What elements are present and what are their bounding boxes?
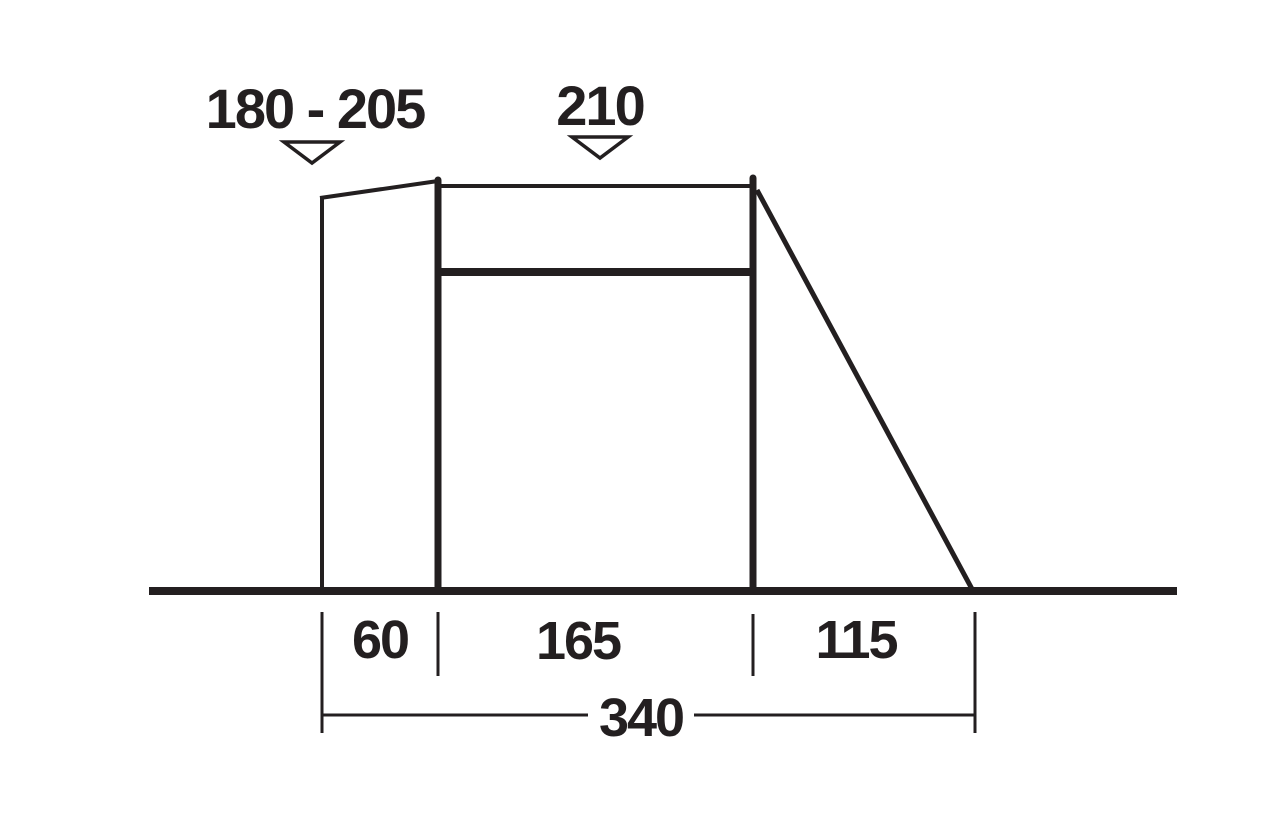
- left-roof-slope-line: [320, 181, 438, 198]
- tent-dimension-diagram: 180 - 205 210 60 165 115 340: [0, 0, 1280, 824]
- width-label-rear: 115: [815, 610, 897, 670]
- total-width-label: 340: [599, 688, 683, 748]
- tent-profile-drawing: [149, 178, 1177, 591]
- width-label-front: 60: [352, 610, 408, 670]
- diagram-canvas: 180 - 205 210 60 165 115 340: [0, 0, 1280, 824]
- width-label-middle: 165: [536, 611, 621, 671]
- height-label-front: 180 - 205: [206, 77, 425, 140]
- height-label-ridge: 210: [556, 74, 643, 137]
- height-annotations: 180 - 205 210: [206, 74, 644, 163]
- rear-guy-line: [757, 190, 972, 589]
- width-annotations: 60 165 115 340: [322, 610, 975, 748]
- triangle-down-icon: [572, 137, 628, 158]
- triangle-down-icon: [284, 142, 340, 163]
